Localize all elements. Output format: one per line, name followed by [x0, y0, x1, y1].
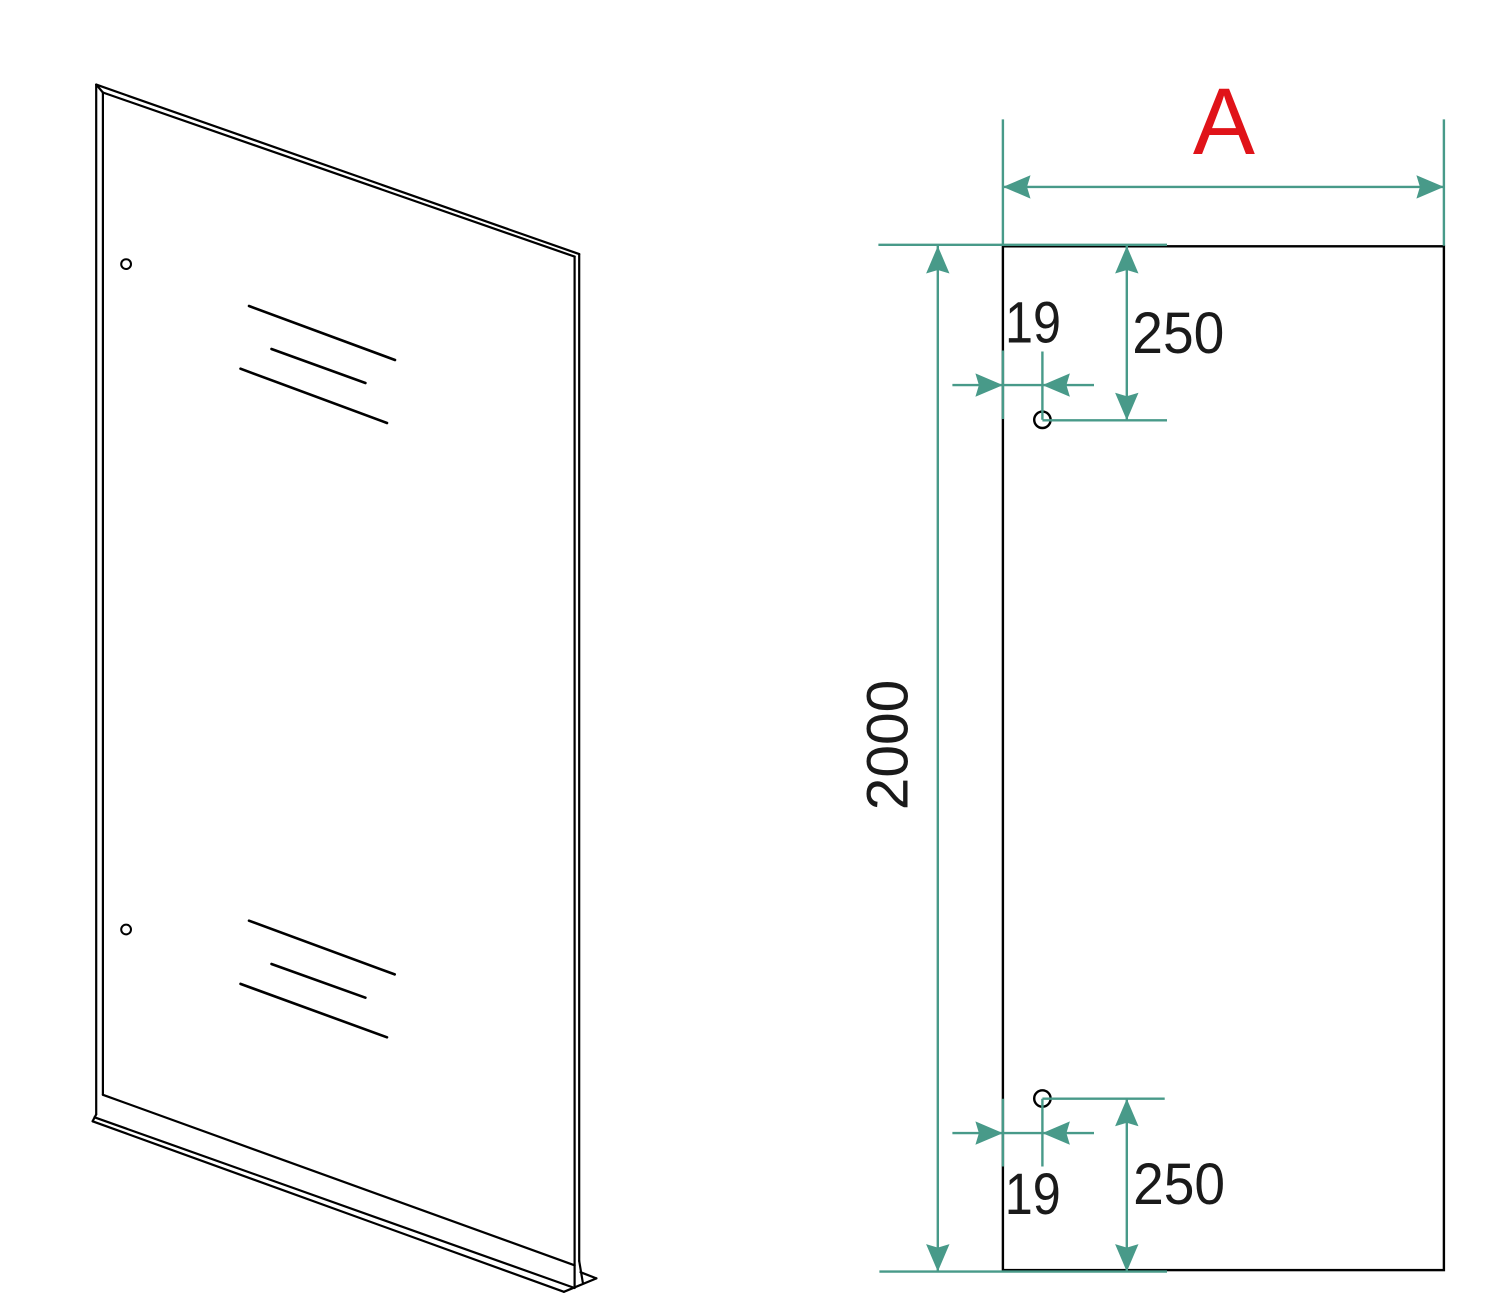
svg-text:A: A: [1193, 70, 1255, 175]
svg-text:19: 19: [1005, 1162, 1061, 1227]
svg-text:19: 19: [1005, 291, 1061, 356]
svg-text:2000: 2000: [855, 680, 920, 811]
svg-text:250: 250: [1133, 1152, 1225, 1217]
svg-text:250: 250: [1132, 301, 1224, 366]
